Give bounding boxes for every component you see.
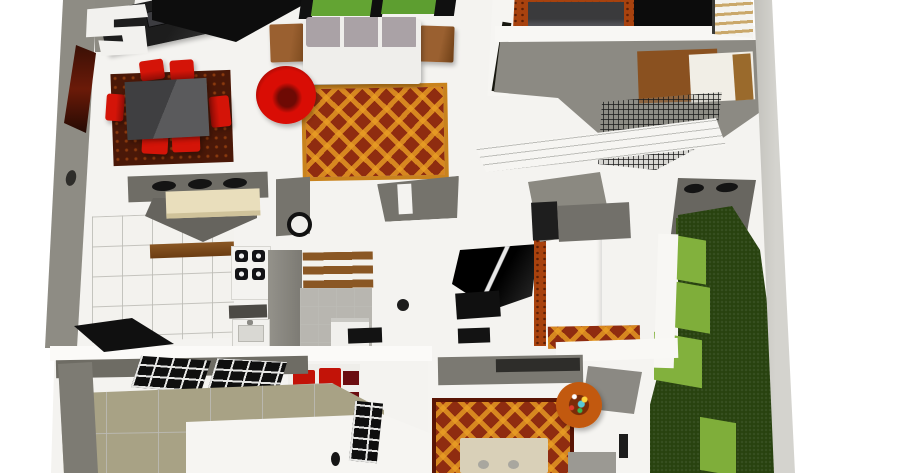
living-rug-pattern: [305, 87, 445, 177]
stove: [231, 246, 271, 300]
dining-chair: [105, 93, 125, 121]
wok-pan-icon: [287, 212, 312, 237]
dining-chair: [208, 95, 231, 128]
vanity-inset-dark: [496, 358, 580, 372]
dining-chair: [139, 58, 166, 81]
window-grass-view-2: [381, 0, 438, 14]
side-table-left: [269, 23, 304, 62]
kitchen-counter-lower: [268, 250, 302, 346]
divider-wall-gap: [397, 184, 413, 215]
tan-bed: [460, 438, 548, 473]
dark-doorway: [531, 201, 559, 240]
sink-basin: [238, 325, 264, 342]
red-donut-chair: [256, 66, 316, 124]
side-table-right: [419, 25, 454, 62]
floor-plan-render: [0, 0, 900, 473]
gray-cabinet-mid: [557, 202, 631, 242]
door-slot-dark: [619, 434, 628, 458]
closet-white: [546, 236, 602, 330]
vanity-dresser: [438, 355, 583, 386]
sofa-cushions: [306, 17, 418, 47]
burner-icon: [252, 268, 265, 280]
dark-opening: [634, 0, 714, 28]
bed-pillow: [732, 53, 753, 100]
kettle-icon: [397, 299, 409, 311]
bath-mat: [455, 290, 501, 319]
burner-icon: [252, 250, 265, 262]
counter-dark: [229, 304, 267, 318]
breakfast-bar-front: [166, 188, 261, 218]
burner-icon: [235, 268, 248, 280]
grass-paver: [700, 417, 736, 473]
porch-white: [186, 414, 432, 473]
runner-rug-vertical: [534, 238, 546, 346]
threshold-dark: [348, 327, 383, 343]
pillow-dot: [508, 460, 519, 469]
living-rug: [301, 83, 449, 182]
door-knob-icon: [331, 452, 340, 466]
kitchen-shelf: [150, 242, 234, 259]
flower-pouf: [556, 382, 602, 428]
pantry-shelves: [303, 251, 374, 290]
window-grass-view-1: [311, 0, 375, 16]
dining-table: [125, 78, 210, 140]
threshold-dark: [458, 327, 491, 343]
kitchen-sink: [232, 319, 270, 347]
pillow-dot: [478, 460, 489, 469]
patio-window-grid: [131, 356, 211, 392]
burner-icon: [235, 250, 248, 262]
window-frame-cap: [434, 0, 456, 16]
grass-paver: [676, 235, 706, 284]
dining-chair: [169, 59, 194, 81]
gray-box: [568, 452, 616, 473]
faucet-icon: [247, 320, 253, 325]
ladder-icon: [712, 0, 753, 38]
bedroom-top-bed: [528, 2, 624, 26]
